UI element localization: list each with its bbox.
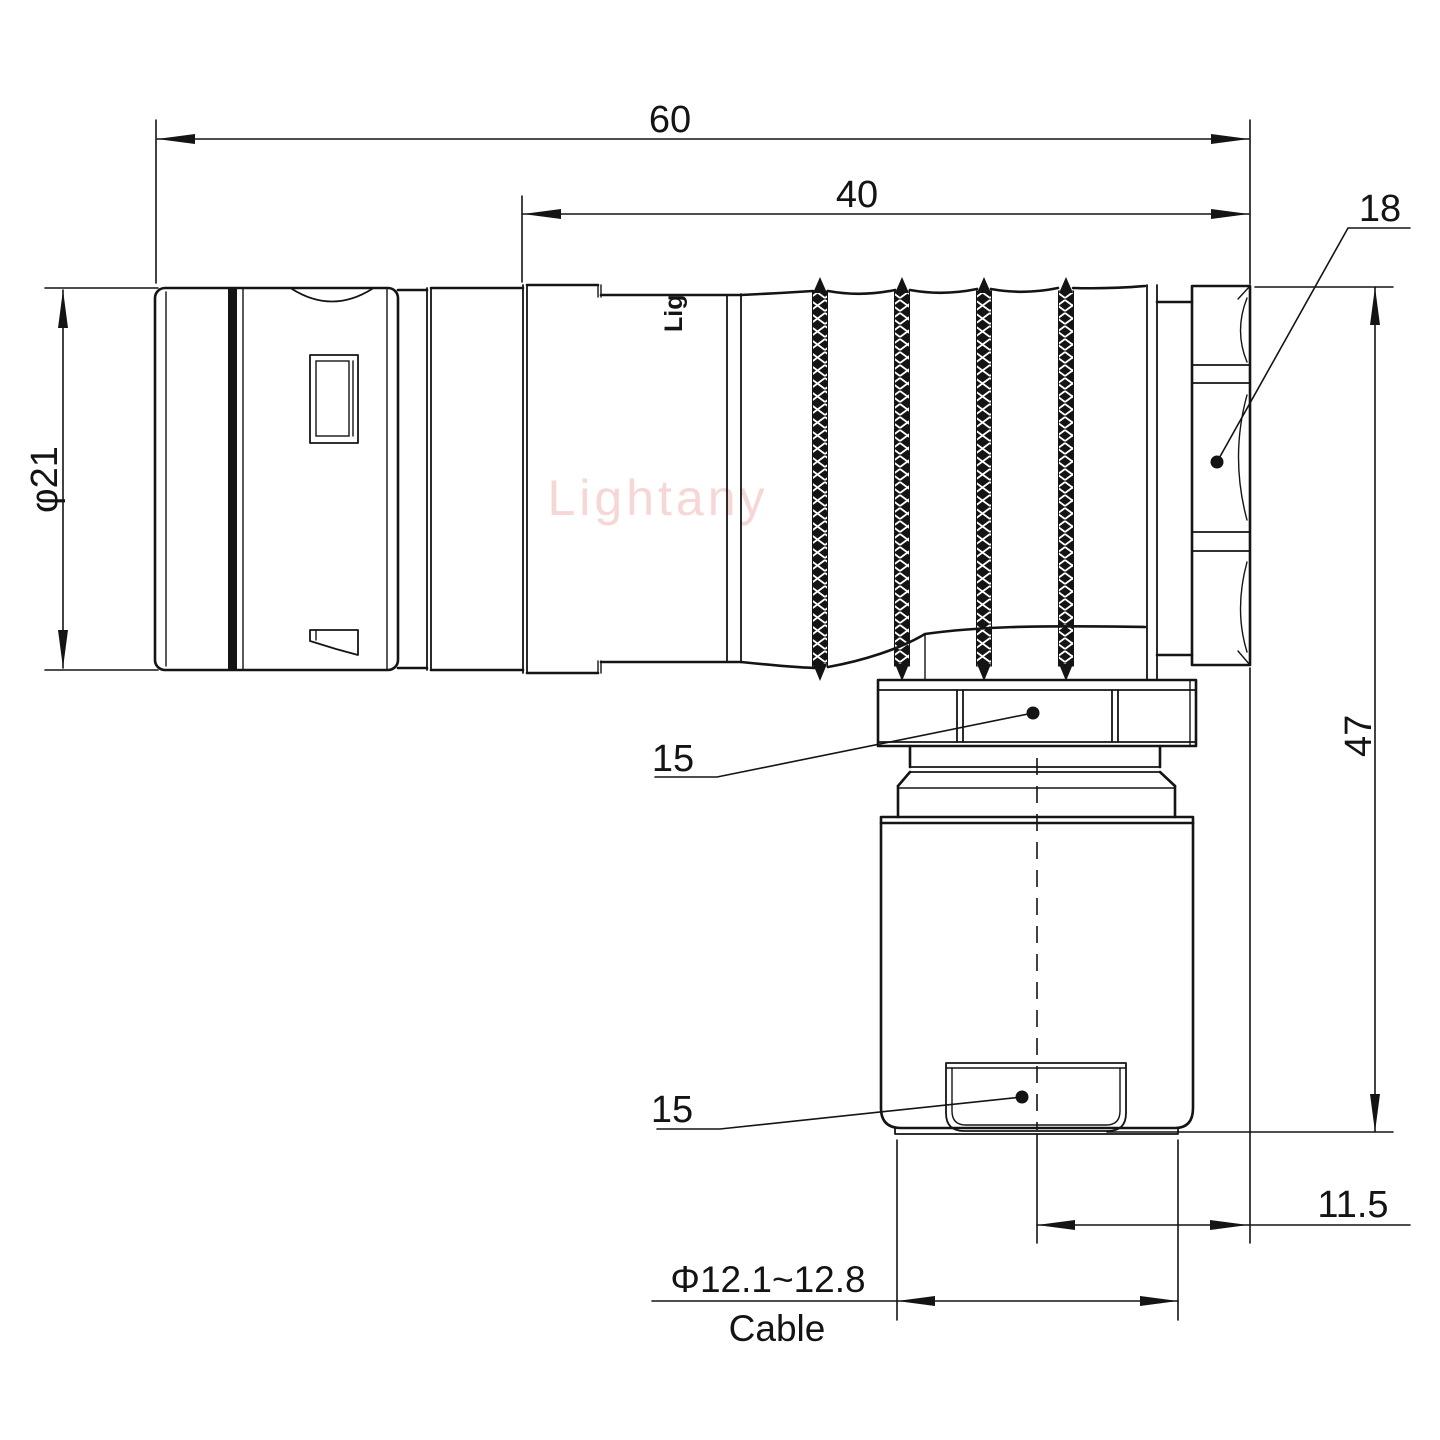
dim-elbow-nut-label: 15 bbox=[652, 738, 694, 780]
technical-drawing: Lightany Lig bbox=[0, 0, 1440, 1440]
dim-cable-range-label: Φ12.1~12.8 bbox=[670, 1259, 865, 1300]
dim-sleeve-diameter-label: φ21 bbox=[24, 446, 66, 513]
dim-axis-offset-label: 11.5 bbox=[1317, 1184, 1388, 1226]
sleeve-groove-band bbox=[228, 289, 237, 669]
dim-cable-word-label: Cable bbox=[729, 1308, 826, 1349]
dim-height-label: 47 bbox=[1338, 715, 1380, 757]
dim-cable-clamp-label: 15 bbox=[651, 1089, 693, 1131]
dim-nut-size-label: 18 bbox=[1359, 188, 1401, 230]
dim-overall-length-label: 60 bbox=[649, 99, 691, 141]
dim-backshell-length-label: 40 bbox=[836, 174, 878, 216]
watermark-text: Lightany bbox=[547, 470, 768, 526]
body-brand-text: Lig bbox=[660, 295, 688, 333]
drawing-canvas: Lightany Lig bbox=[0, 0, 1440, 1440]
